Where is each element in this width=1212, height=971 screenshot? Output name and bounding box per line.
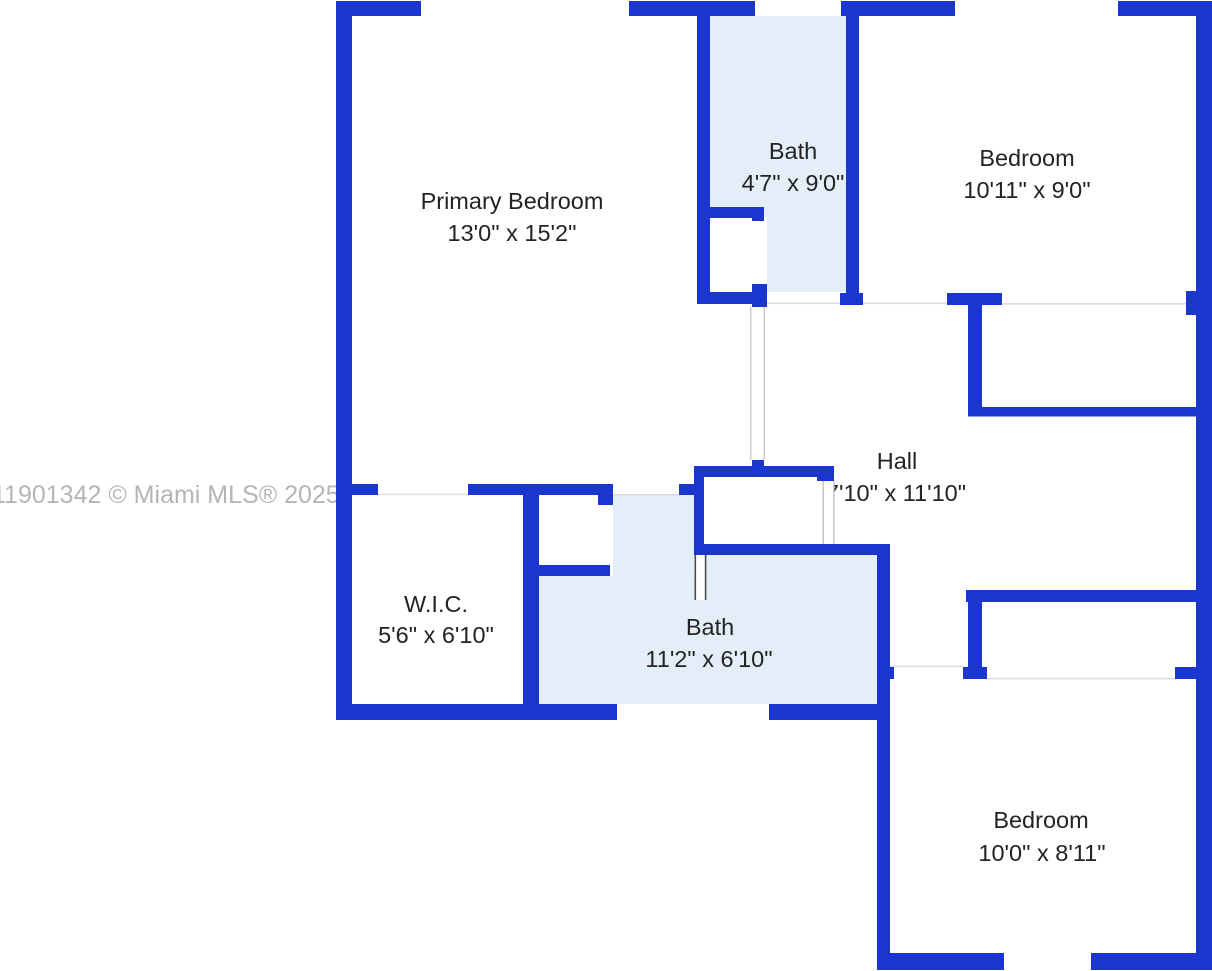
svg-text:Hall: Hall	[877, 448, 917, 474]
svg-text:Bath: Bath	[686, 614, 734, 640]
svg-text:11901342 © Miami MLS® 2025: 11901342 © Miami MLS® 2025	[0, 481, 340, 509]
svg-text:W.I.C.: W.I.C.	[404, 591, 468, 617]
svg-text:4'7" x 9'0": 4'7" x 9'0"	[742, 170, 845, 196]
svg-text:Bedroom: Bedroom	[979, 145, 1074, 171]
svg-text:Bath: Bath	[769, 138, 817, 164]
svg-text:11'2" x 6'10": 11'2" x 6'10"	[645, 646, 772, 672]
svg-text:13'0" x 15'2": 13'0" x 15'2"	[448, 220, 577, 246]
svg-text:5'6" x 6'10": 5'6" x 6'10"	[378, 622, 494, 648]
svg-text:Bedroom: Bedroom	[993, 807, 1088, 833]
svg-text:Primary Bedroom: Primary Bedroom	[421, 188, 604, 214]
svg-text:7'10" x 11'10": 7'10" x 11'10"	[826, 480, 966, 506]
svg-text:10'0" x 8'11": 10'0" x 8'11"	[978, 840, 1105, 866]
svg-text:10'11" x 9'0": 10'11" x 9'0"	[963, 177, 1090, 203]
